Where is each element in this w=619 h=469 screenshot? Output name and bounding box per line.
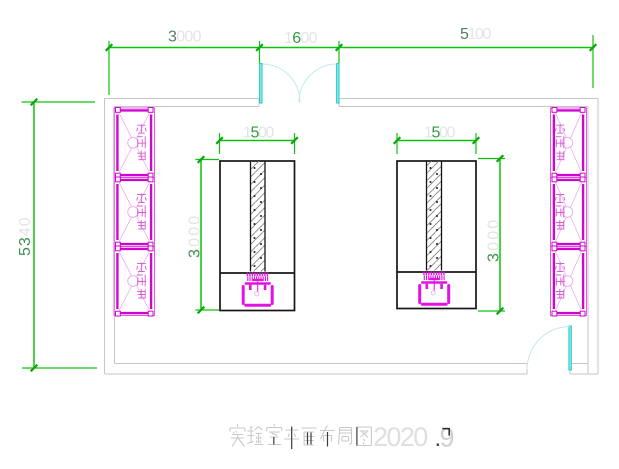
svg-text:1500: 1500 [424,125,455,142]
svg-text:3000: 3000 [187,214,204,258]
svg-text:2020: 2020 [373,422,427,452]
svg-text:5340: 5340 [17,216,34,256]
svg-text:3000: 3000 [168,29,202,46]
svg-text:9: 9 [440,423,455,453]
svg-text:1500: 1500 [243,125,274,142]
svg-text:5100: 5100 [460,26,491,43]
svg-text:3000: 3000 [486,218,503,262]
svg-text:1600: 1600 [284,30,318,47]
